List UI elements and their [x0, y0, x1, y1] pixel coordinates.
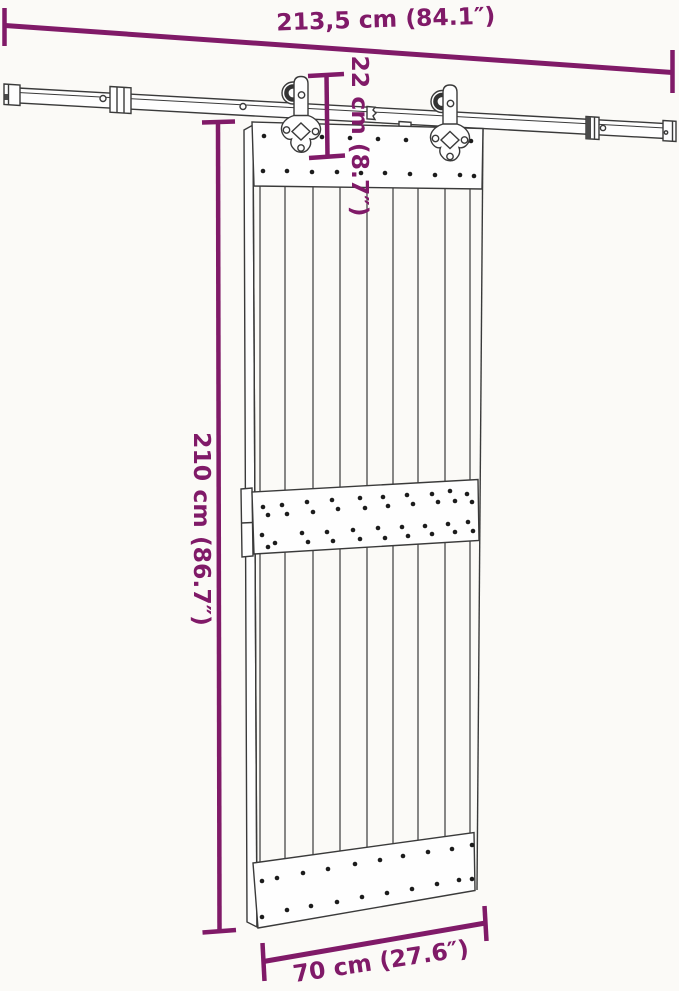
screw-dot [311, 510, 316, 515]
screw-dot [435, 882, 440, 887]
screw-dot [386, 504, 391, 509]
screw-dot [430, 492, 435, 497]
screw-dot [401, 854, 406, 859]
screw-dot [331, 539, 336, 544]
screw-dot [326, 867, 331, 872]
screw-dot [358, 496, 363, 501]
screw-dot [426, 850, 431, 855]
rail-length-label: 213,5 cm (84.1″) [276, 2, 496, 37]
screw-dot [310, 170, 315, 175]
rail-screw-hole [100, 96, 106, 102]
screw-dot [335, 900, 340, 905]
screw-dot [430, 532, 435, 537]
rail-screw-hole [600, 125, 605, 130]
hanger-drop-label: 22 cm (8.7″) [346, 55, 374, 216]
screw-dot [446, 522, 451, 527]
screw-dot [351, 528, 356, 533]
screw-dot [260, 915, 265, 920]
screw-dot [470, 877, 475, 882]
screw-dot [285, 908, 290, 913]
screw-dot [405, 493, 410, 498]
screw-dot [423, 524, 428, 529]
screw-dot [300, 531, 305, 536]
screw-dot [470, 500, 475, 505]
barn-door-diagram-svg: 213,5 cm (84.1″) 22 cm (8.7″) 210 cm (86… [0, 0, 679, 991]
screw-dot [410, 887, 415, 892]
product-dimension-diagram: 213,5 cm (84.1″) 22 cm (8.7″) 210 cm (86… [0, 0, 679, 991]
door-height-label: 210 cm (86.7″) [188, 432, 216, 626]
screw-dot [433, 173, 438, 178]
screw-dot [266, 545, 271, 550]
screw-dot [406, 534, 411, 539]
rail-wall-clamp [586, 117, 599, 140]
screw-dot [273, 541, 278, 546]
screw-dot [376, 137, 381, 142]
screw-dot [262, 134, 267, 139]
rail-end-bracket-right [663, 121, 676, 142]
screw-dot [383, 171, 388, 176]
screw-dot [381, 495, 386, 500]
screw-dot [335, 170, 340, 175]
screw-dot [458, 173, 463, 178]
screw-dot [383, 536, 388, 541]
rail-coupling [110, 87, 131, 114]
screw-dot [450, 847, 455, 852]
screw-dot [436, 500, 441, 505]
screw-dot [360, 895, 365, 900]
screw-dot [306, 540, 311, 545]
screw-dot [261, 505, 266, 510]
screw-dot [408, 172, 413, 177]
door-tab-notch [242, 523, 253, 524]
screw-dot [309, 904, 314, 909]
screw-dot [353, 862, 358, 867]
screw-dot [275, 876, 280, 881]
screw-dot [378, 858, 383, 863]
screw-dot [466, 520, 471, 525]
screw-dot [320, 135, 325, 140]
screw-dot [266, 513, 271, 518]
screw-dot [330, 498, 335, 503]
screw-dot [411, 502, 416, 507]
screw-dot [280, 503, 285, 508]
door-middle-board [252, 480, 479, 555]
door-bottom-board [253, 833, 475, 929]
screw-dot [448, 489, 453, 494]
product-drawing [4, 77, 676, 929]
screw-dot [453, 499, 458, 504]
rail-screw-hole [240, 104, 246, 110]
screw-dot [261, 169, 266, 174]
screw-dot [465, 492, 470, 497]
screw-dot [301, 871, 306, 876]
screw-dot [305, 500, 310, 505]
screw-dot [363, 506, 368, 511]
screw-dot [336, 507, 341, 512]
screw-dot [472, 174, 477, 179]
screw-dot [400, 525, 405, 530]
screw-dot [358, 537, 363, 542]
screw-dot [285, 512, 290, 517]
screw-dot [325, 530, 330, 535]
screw-dot [285, 169, 290, 174]
screw-dot [471, 529, 476, 534]
screw-dot [376, 526, 381, 531]
screw-dot [385, 891, 390, 896]
rail-end-bracket-left [4, 84, 20, 106]
barn-door [241, 122, 483, 928]
screw-dot [457, 878, 462, 883]
screw-dot [260, 533, 265, 538]
screw-dot [260, 879, 265, 884]
screw-dot [453, 530, 458, 535]
screw-dot [404, 138, 409, 143]
screw-dot [470, 843, 475, 848]
